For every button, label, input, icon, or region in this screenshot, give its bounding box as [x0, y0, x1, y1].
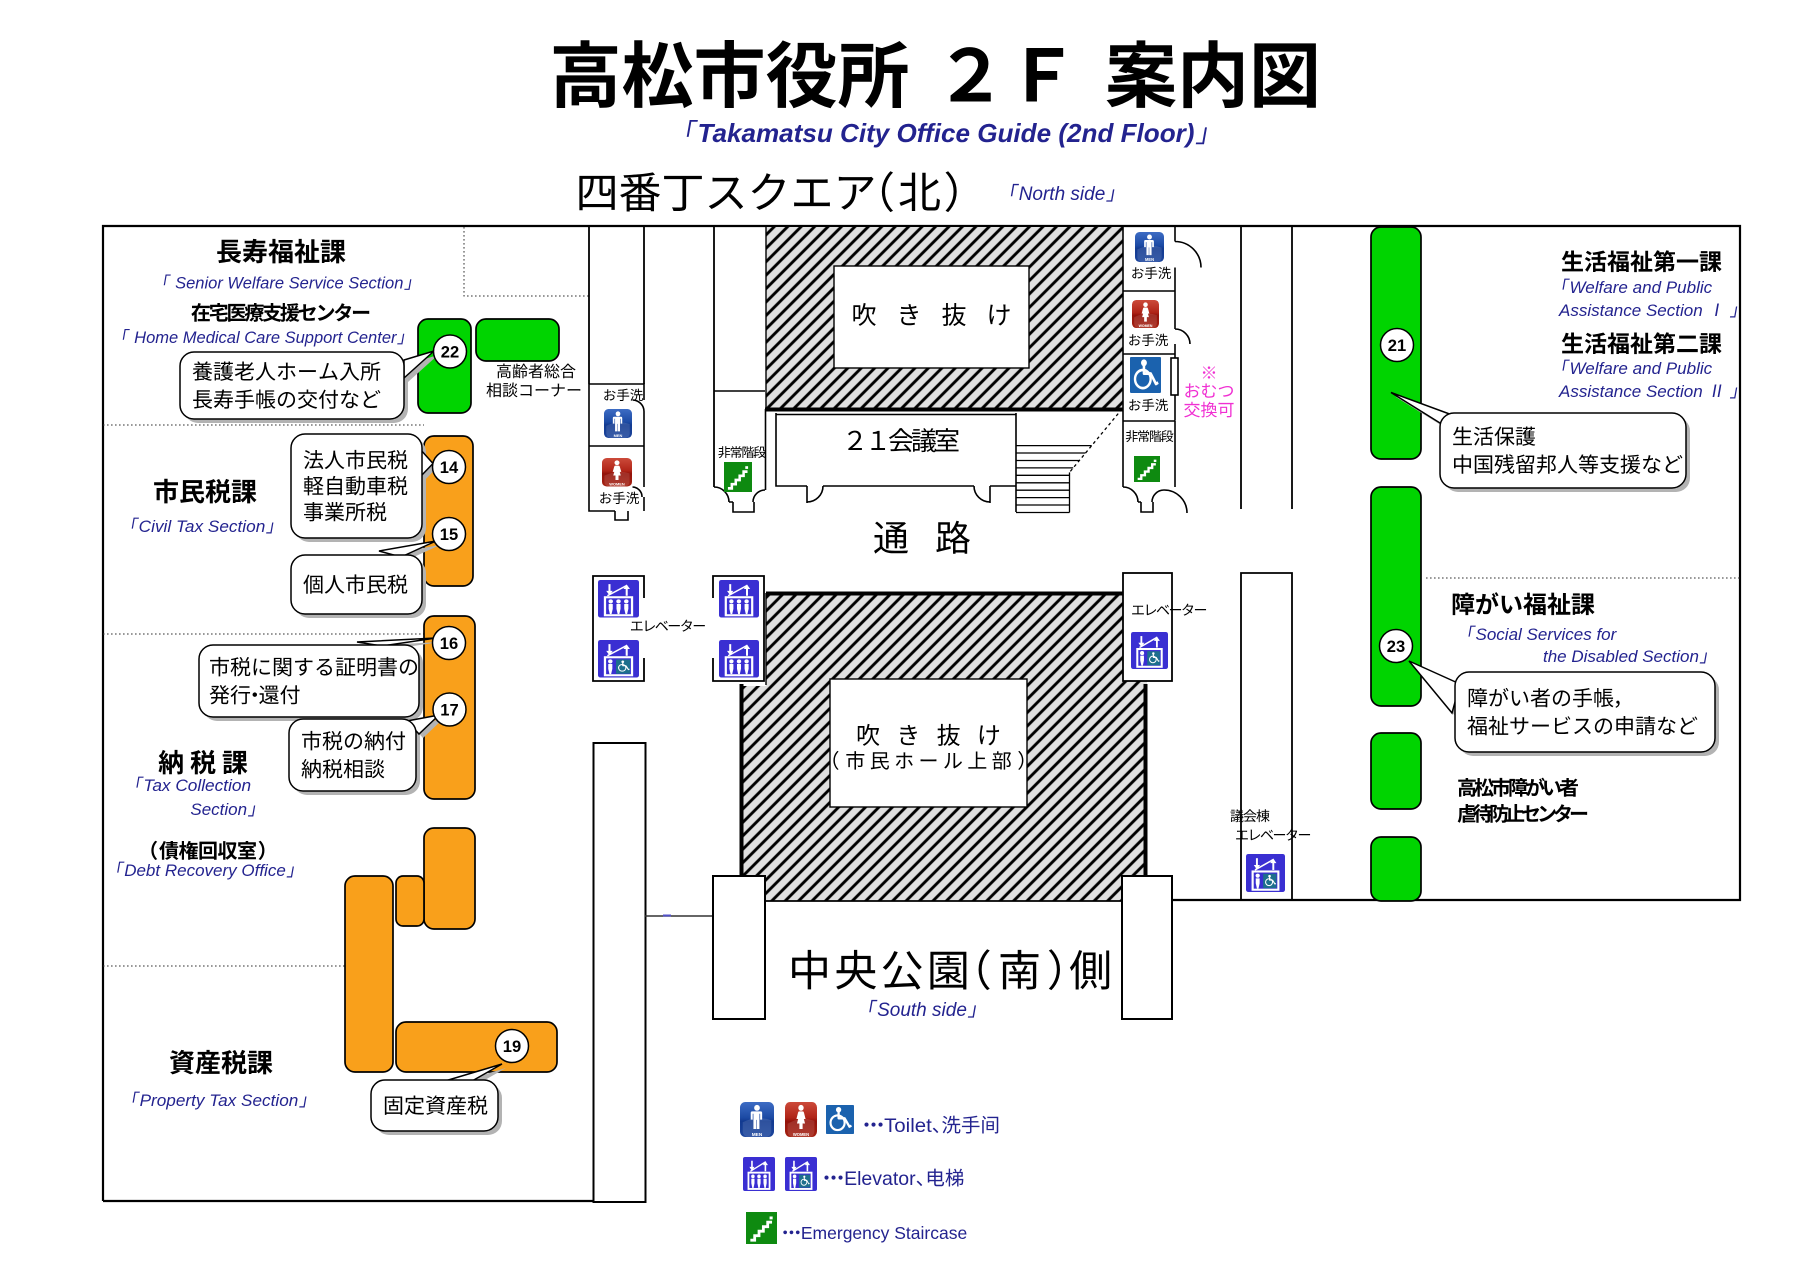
- svg-text:Debt Recovery Office: Debt Recovery Office: [124, 861, 286, 880]
- svg-text:Emergency Staircase: Emergency Staircase: [801, 1223, 967, 1243]
- svg-text:19: 19: [503, 1038, 521, 1056]
- svg-text:Toilet: Toilet: [884, 1115, 932, 1137]
- svg-text:Takamatsu City Office Guide (2: Takamatsu City Office Guide (2nd Floor): [698, 118, 1195, 148]
- svg-text:Home Medical Care Support Cent: Home Medical Care Support Center: [130, 329, 398, 347]
- svg-text:Property Tax Section: Property Tax Section: [140, 1091, 299, 1110]
- svg-text:Section: Section: [190, 800, 247, 819]
- svg-text:22: 22: [441, 343, 459, 361]
- svg-text:Civil Tax Section: Civil Tax Section: [139, 517, 266, 536]
- svg-text:14: 14: [440, 459, 459, 477]
- svg-text:17: 17: [440, 701, 458, 719]
- svg-text:North side: North side: [1019, 184, 1106, 205]
- svg-text:Senior Welfare Service Section: Senior Welfare Service Section: [171, 275, 404, 293]
- svg-text:21: 21: [1388, 337, 1406, 355]
- svg-text:Welfare and Public: Welfare and Public: [1570, 278, 1713, 297]
- svg-text:Elevator: Elevator: [844, 1168, 916, 1190]
- svg-text:Tax Collection: Tax Collection: [143, 776, 251, 795]
- svg-text:Welfare and Public: Welfare and Public: [1570, 359, 1713, 378]
- svg-text:the Disabled Section: the Disabled Section: [1543, 647, 1699, 666]
- svg-text:16: 16: [440, 635, 458, 653]
- svg-text:Assistance Section: Assistance Section: [1558, 382, 1707, 401]
- svg-text:Assistance Section: Assistance Section: [1558, 301, 1707, 320]
- svg-text:Social Services for: Social Services for: [1476, 625, 1618, 644]
- svg-text:South side: South side: [877, 1000, 967, 1021]
- svg-text:23: 23: [1387, 638, 1405, 656]
- svg-text:15: 15: [440, 526, 458, 544]
